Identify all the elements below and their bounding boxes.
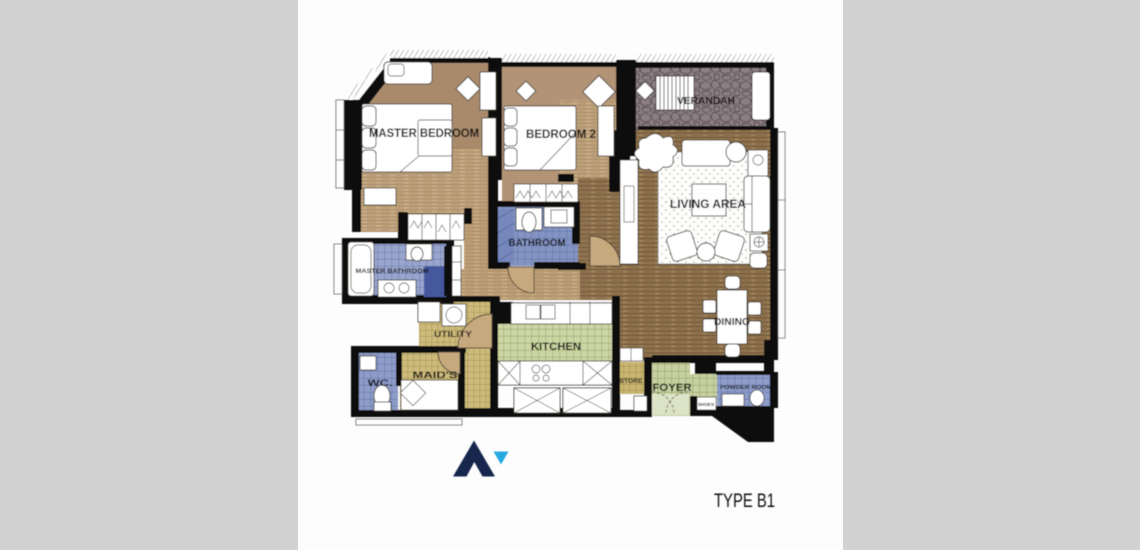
svg-text:POWDER ROOM: POWDER ROOM <box>720 385 772 391</box>
svg-text:UTILITY: UTILITY <box>434 329 472 339</box>
svg-text:SHOES: SHOES <box>698 402 714 407</box>
svg-text:BATHROOM: BATHROOM <box>509 238 566 249</box>
svg-text:LIVING AREA: LIVING AREA <box>670 199 746 211</box>
svg-text:DINING: DINING <box>714 316 750 328</box>
svg-text:MASTER BATHROOM: MASTER BATHROOM <box>356 268 429 275</box>
svg-text:BEDROOM 2: BEDROOM 2 <box>526 129 596 141</box>
svg-text:FOYER: FOYER <box>653 382 692 394</box>
svg-text:MASTER BEDROOM: MASTER BEDROOM <box>369 128 479 140</box>
svg-text:WC.: WC. <box>368 378 393 389</box>
svg-text:VERANDAH: VERANDAH <box>677 95 735 107</box>
svg-text:MAID'S: MAID'S <box>413 370 458 381</box>
svg-text:KITCHEN: KITCHEN <box>531 341 581 353</box>
svg-text:STORE: STORE <box>620 378 644 385</box>
svg-text:TYPE B1: TYPE B1 <box>714 491 775 512</box>
